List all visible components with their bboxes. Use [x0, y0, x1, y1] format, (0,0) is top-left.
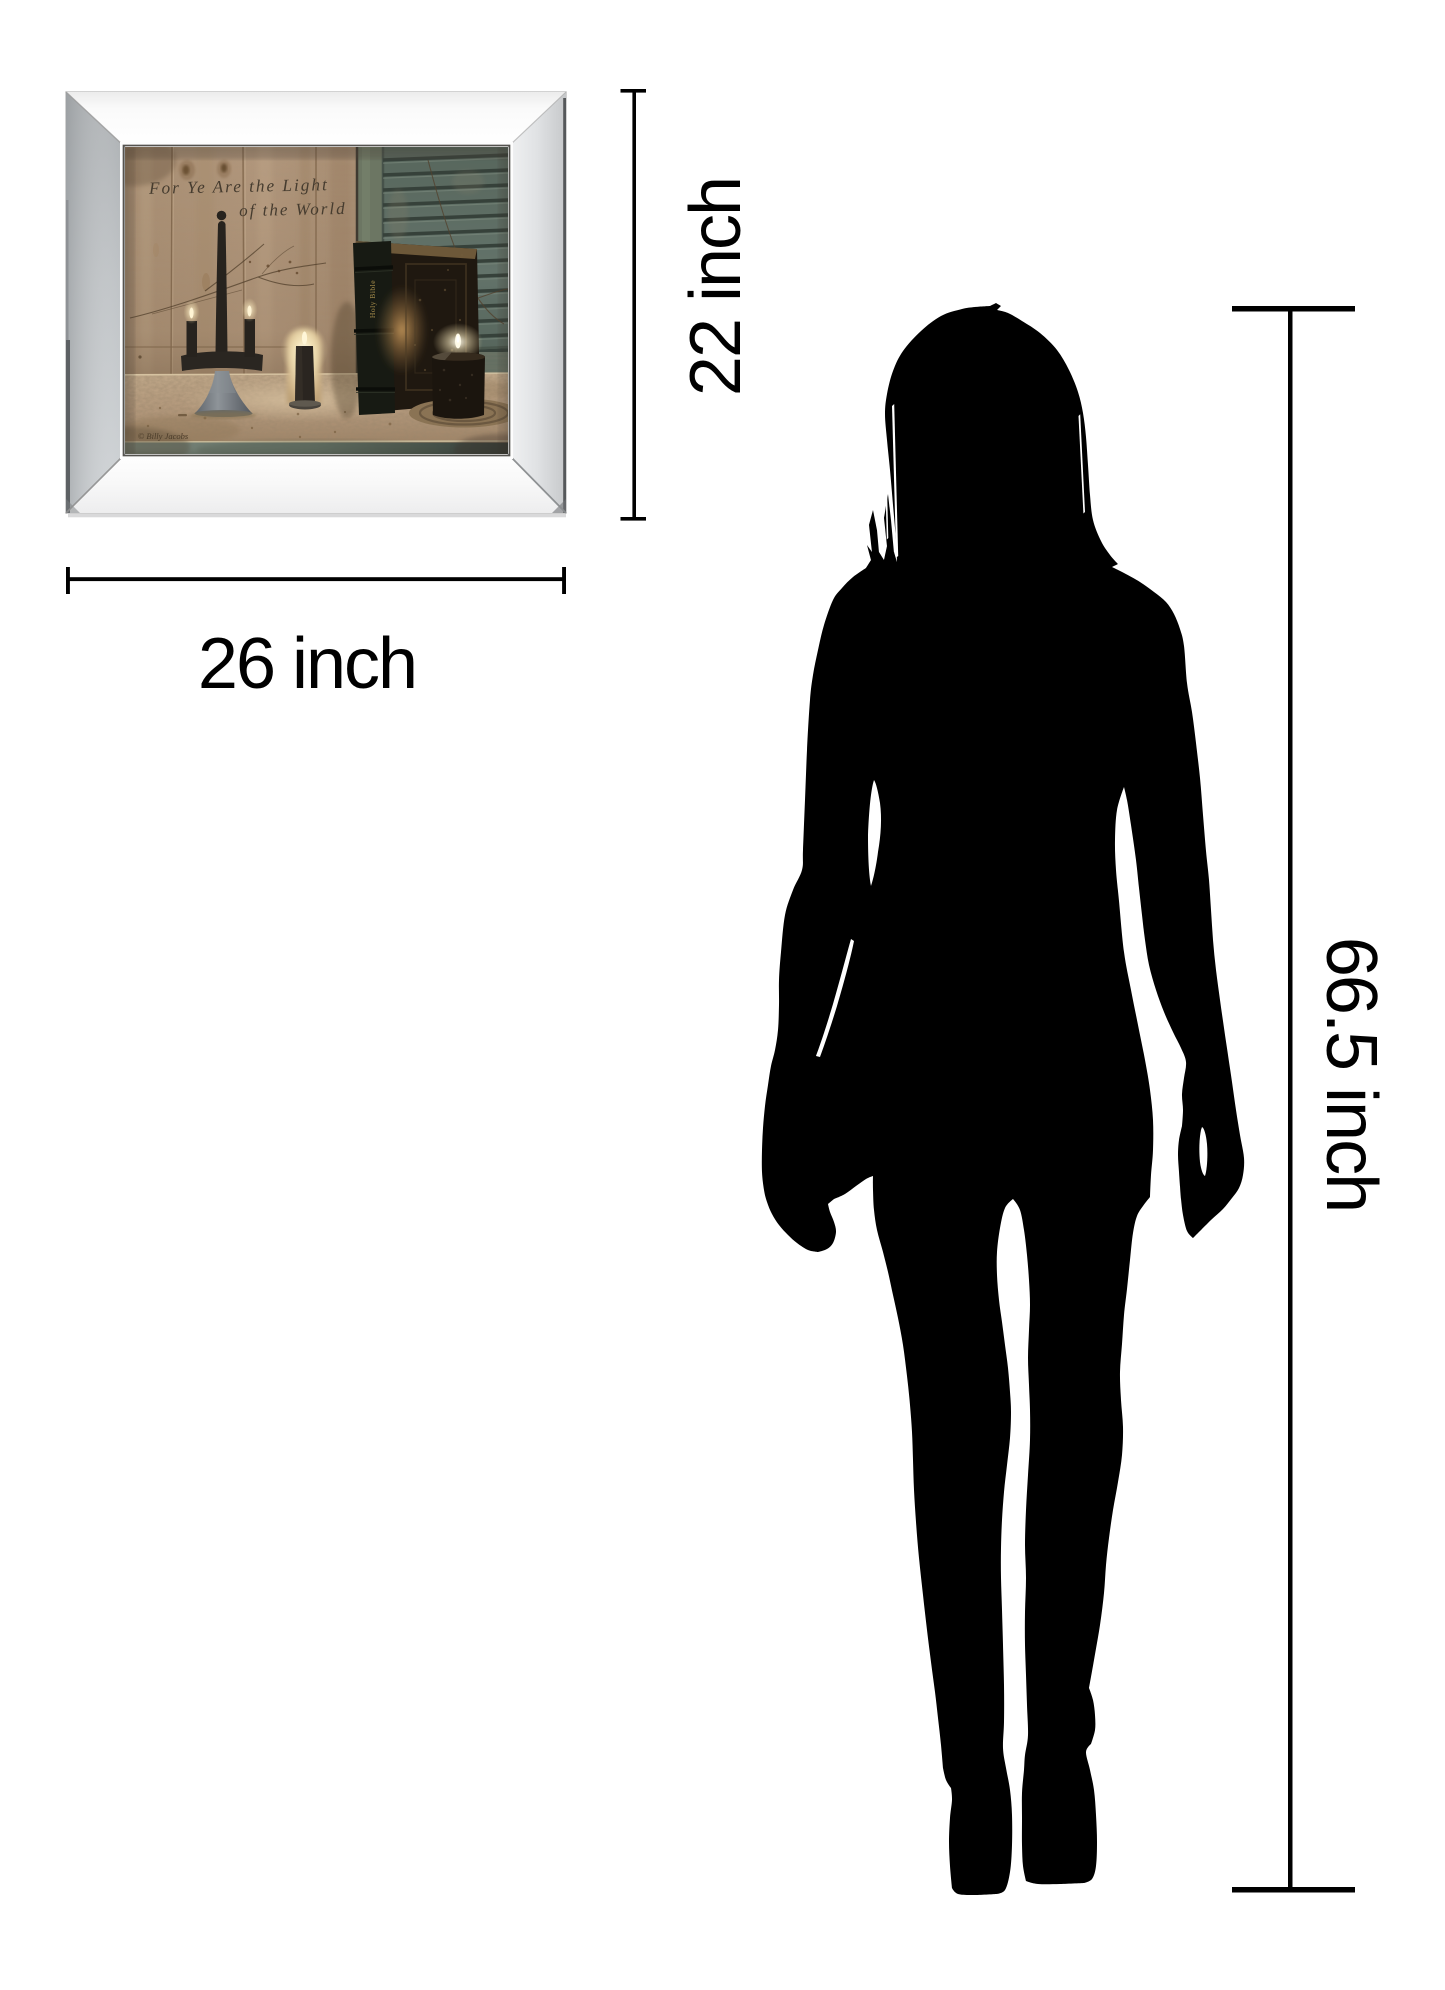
svg-text:of the World: of the World	[239, 199, 347, 220]
svg-text:66.5 inch: 66.5 inch	[1311, 937, 1391, 1211]
svg-text:22 inch: 22 inch	[676, 178, 756, 396]
svg-text:For Ye Are the Light: For Ye Are the Light	[148, 175, 329, 198]
svg-text:26 inch: 26 inch	[198, 624, 416, 704]
svg-text:Holy Bible: Holy Bible	[368, 280, 377, 318]
